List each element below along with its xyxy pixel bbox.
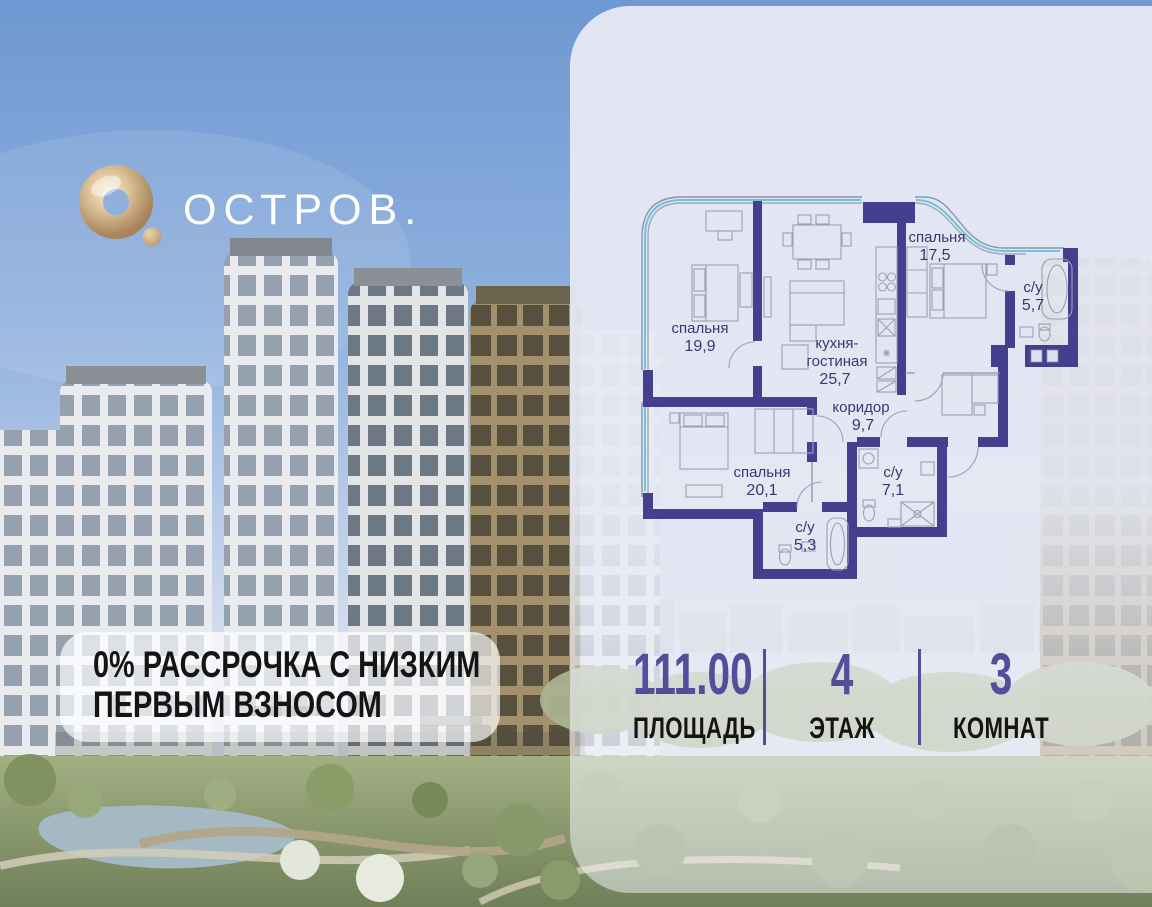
room-area: 25,7	[819, 371, 850, 388]
stat-floor-value: 4	[789, 648, 895, 702]
room-label: с/у	[1023, 279, 1043, 296]
stat-area: 111.00 ПЛОЩАДЬ	[633, 646, 763, 748]
room-area: 17,5	[919, 247, 950, 264]
stat-area-label: ПЛОЩАДЬ	[633, 714, 729, 744]
promo-text: 0% РАССРОЧКА С НИЗКИМ ПЕРВЫМ ВЗНОСОМ	[93, 645, 480, 725]
room-label: коридор	[832, 399, 889, 416]
stat-floor-label: ЭТАЖ	[786, 714, 898, 744]
promo-line2: ПЕРВЫМ ВЗНОСОМ	[93, 685, 480, 725]
brand-name: ОСТРОВ.	[183, 186, 423, 235]
room-area: 9,7	[852, 417, 874, 434]
apartment-stats: 111.00 ПЛОЩАДЬ 4 ЭТАЖ 3 КОМНАТ	[633, 646, 1081, 748]
stat-floor: 4 ЭТАЖ	[766, 646, 918, 748]
room-label: гостиная	[807, 353, 868, 370]
stat-area-value: 111.00	[633, 648, 724, 702]
brand-logo: ОСТРОВ.	[70, 150, 190, 260]
stat-rooms-label: КОМНАТ	[942, 714, 1060, 744]
floorplan: спальня 19,9 кухня- гостиная 25,7 спальн…	[630, 185, 1110, 605]
gold-ring-icon	[70, 150, 190, 260]
room-label: спальня	[734, 464, 791, 481]
room-area: 20,1	[746, 482, 777, 499]
room-labels: спальня 19,9 кухня- гостиная 25,7 спальн…	[672, 229, 1045, 554]
room-area: 7,1	[882, 482, 904, 499]
room-label: спальня	[672, 320, 729, 337]
promo-banner: 0% РАССРОЧКА С НИЗКИМ ПЕРВЫМ ВЗНОСОМ	[60, 632, 500, 742]
walls	[643, 201, 1078, 579]
apartment-card-panel: спальня 19,9 кухня- гостиная 25,7 спальн…	[570, 6, 1152, 893]
stat-rooms: 3 КОМНАТ	[921, 646, 1081, 748]
room-area: 19,9	[684, 338, 715, 355]
room-area: 5,3	[794, 537, 816, 554]
room-label: с/у	[883, 464, 903, 481]
room-area: 5,7	[1022, 297, 1044, 314]
promo-line1: 0% РАССРОЧКА С НИЗКИМ	[93, 645, 480, 685]
room-label: спальня	[909, 229, 966, 246]
stat-rooms-value: 3	[945, 648, 1057, 702]
room-label: кухня-	[815, 335, 858, 352]
room-label: с/у	[795, 519, 815, 536]
